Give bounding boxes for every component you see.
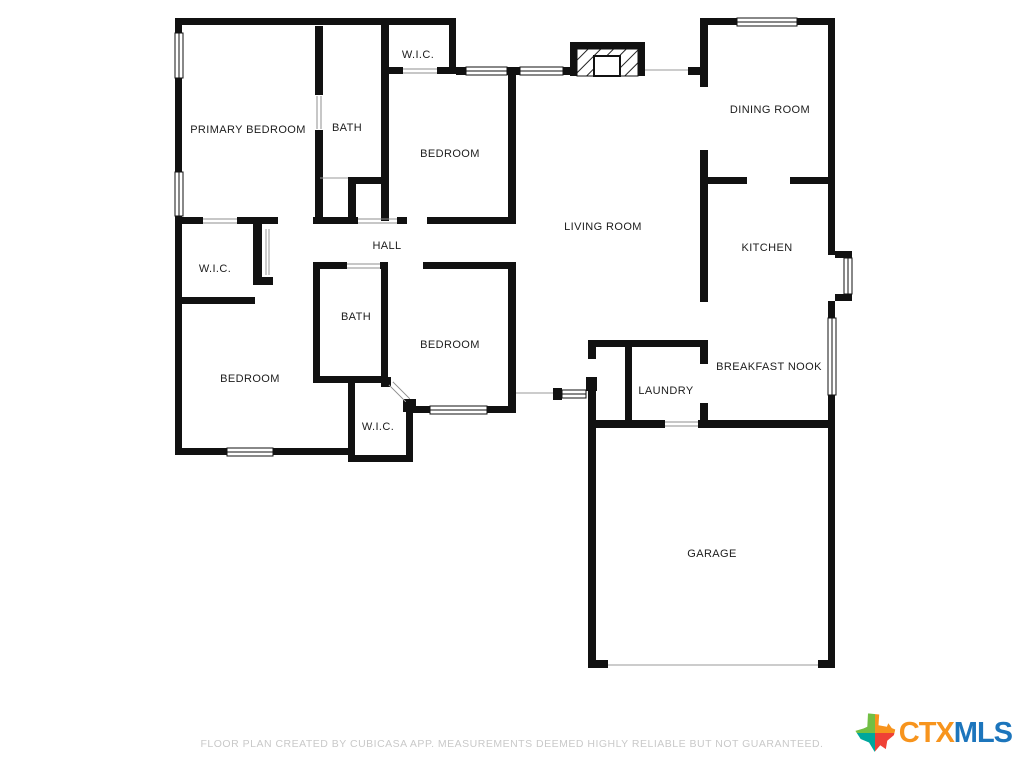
fireplace-icon <box>570 42 645 76</box>
walls-layer <box>175 18 852 668</box>
texas-state-icon <box>854 712 896 754</box>
ctxmls-logo: CTXMLS <box>854 712 1012 754</box>
logo-text-suffix: MLS <box>954 717 1012 749</box>
logo-text-prefix: CTX <box>899 717 954 749</box>
floor-plan-drawing <box>0 0 1024 768</box>
logo-text: CTXMLS <box>899 719 1012 748</box>
floor-plan-page: PRIMARY BEDROOMBATHW.I.C.BEDROOMDINING R… <box>0 0 1024 768</box>
